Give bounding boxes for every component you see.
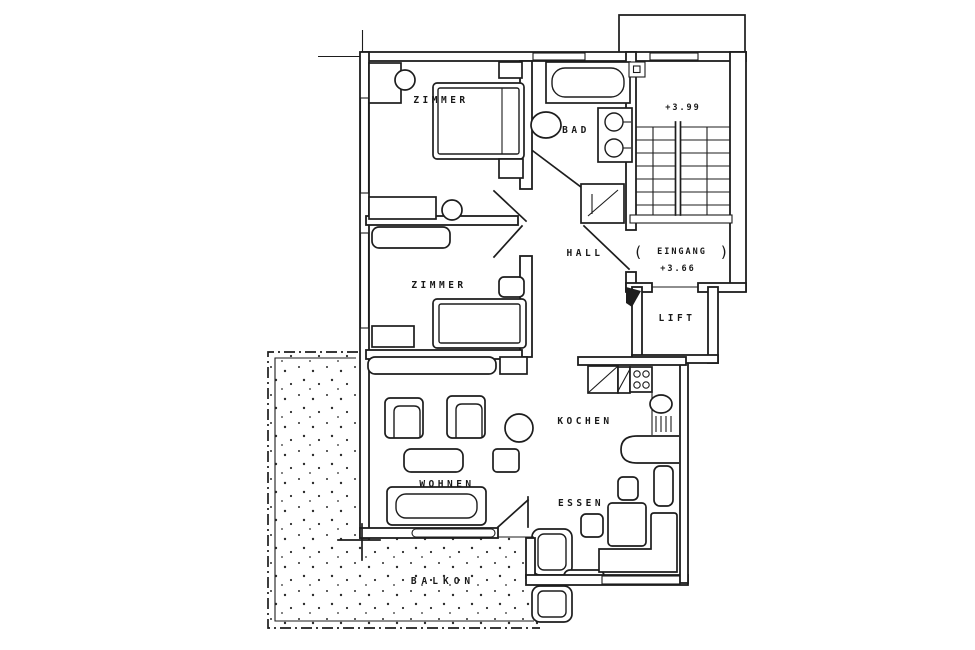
entrance-canopy — [619, 15, 745, 52]
door-balcony-leaf — [498, 500, 528, 527]
armchair-2 — [447, 396, 485, 438]
sideboard-end — [500, 357, 527, 374]
kitchen-peninsula — [621, 436, 679, 463]
label-zimmer2: ZIMMER — [411, 280, 466, 291]
sofa — [387, 487, 486, 525]
window-top-2 — [650, 53, 698, 60]
dining-bench-east — [654, 466, 673, 506]
window-essen-south — [602, 576, 680, 584]
window-top-1 — [533, 53, 585, 60]
drainer-lines — [656, 416, 671, 432]
wall-connector-south — [526, 538, 535, 578]
wall-eingang-south-2 — [698, 283, 746, 292]
armchair-1 — [385, 398, 423, 438]
label-wohnen: WOHNEN — [419, 479, 474, 490]
coffee-table — [404, 449, 463, 472]
kitchen-sink — [650, 395, 672, 413]
side-table-round — [505, 414, 533, 442]
nightstand-2 — [499, 159, 523, 178]
label-hall: HALL — [567, 248, 604, 259]
cabinet — [372, 326, 414, 347]
label-eingang: EINGANG — [657, 247, 707, 257]
floor-plan-drawing: ZIMMER ZIMMER BAD HALL EINGANG ( ) +3.66… — [0, 0, 975, 650]
bed-single — [433, 299, 526, 348]
nightstand-1 — [499, 62, 522, 78]
room-wohnen — [368, 357, 533, 525]
shaft-box — [629, 62, 645, 77]
side-table-square — [493, 449, 519, 472]
label-bad: BAD — [562, 125, 590, 136]
stool — [395, 70, 415, 90]
floor-plan-page: ZIMMER ZIMMER BAD HALL EINGANG ( ) +3.66… — [0, 0, 975, 650]
room-essen — [581, 466, 677, 572]
room-bad — [531, 62, 632, 162]
label-zimmer1: ZIMMER — [413, 95, 468, 106]
door-zimmer2 — [494, 226, 522, 257]
label-essen: ESSEN — [558, 498, 604, 509]
level-entrance: +3.66 — [660, 264, 696, 274]
wall-kitchen-east — [680, 357, 688, 583]
dining-chair-2 — [581, 514, 603, 537]
level-stairwell: +3.99 — [665, 103, 701, 113]
wall-lift-east — [708, 287, 718, 363]
wall-kitchen-north — [578, 357, 686, 365]
dining-table — [608, 503, 646, 546]
dining-chair-1 — [618, 477, 638, 500]
toilet — [531, 112, 561, 138]
stair-treads — [636, 127, 730, 215]
room-hall — [581, 184, 624, 223]
washbasin-unit — [598, 108, 632, 162]
window-left-1 — [361, 98, 369, 193]
nightstand-3 — [499, 277, 524, 297]
wall-landing-edge — [630, 215, 732, 223]
room-kochen — [588, 366, 679, 463]
stove — [630, 367, 652, 392]
window-wohnen-south — [412, 529, 495, 537]
window-left-2 — [361, 233, 369, 328]
sideboard — [368, 357, 496, 374]
door-mark-left: ( — [633, 243, 642, 261]
label-lift: LIFT — [659, 313, 696, 324]
sofa-bed — [372, 227, 450, 248]
desk-chair — [442, 200, 462, 220]
desk — [369, 197, 436, 219]
stairwell — [629, 62, 730, 215]
wall-stair-east — [730, 52, 746, 291]
label-kochen: KOCHEN — [557, 416, 612, 427]
label-balkon: BALKON — [411, 576, 475, 587]
door-bad — [533, 151, 581, 187]
door-mark-right: ) — [719, 243, 728, 261]
